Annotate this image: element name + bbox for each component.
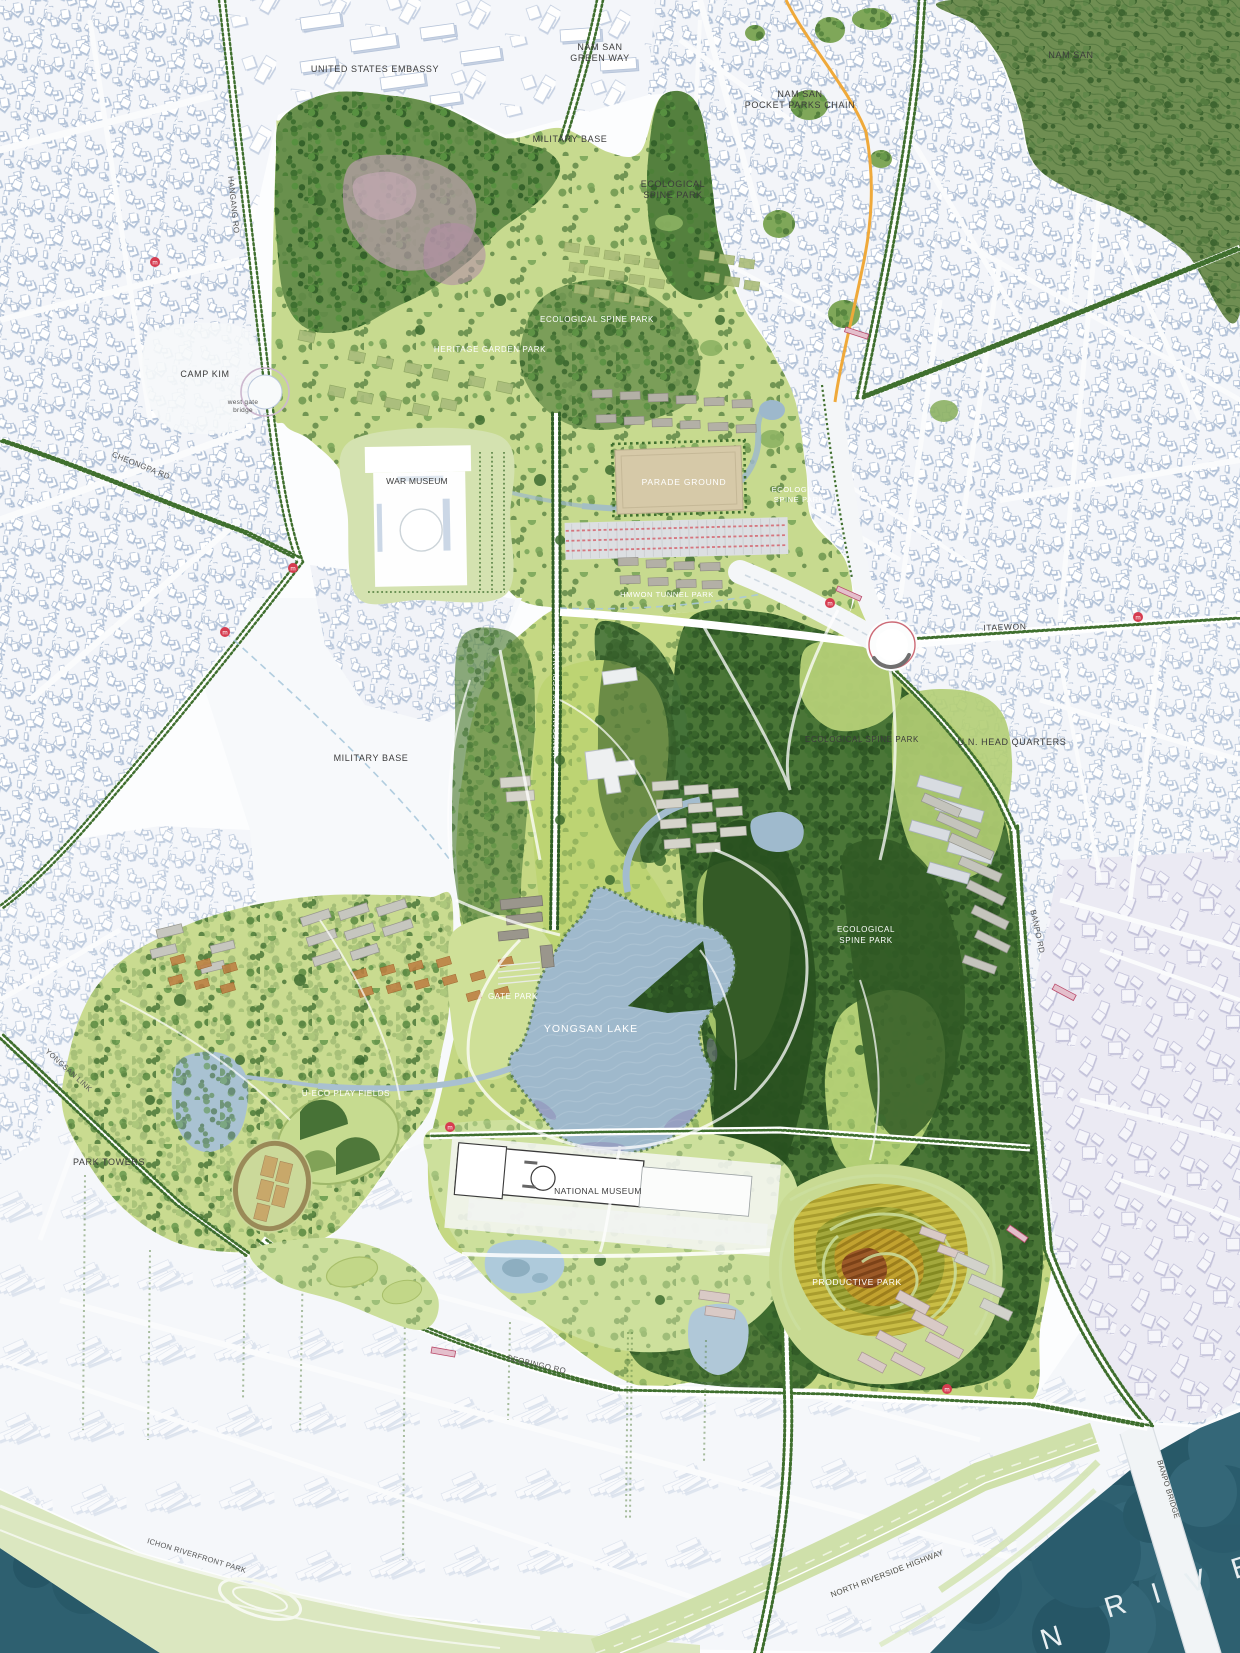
svg-text:U-ECO PLAY FIELDS: U-ECO PLAY FIELDS — [302, 1089, 390, 1098]
svg-text:WAR MUSEUM: WAR MUSEUM — [386, 476, 448, 486]
svg-text:ECOLOGICAL SPINE PARK: ECOLOGICAL SPINE PARK — [540, 315, 654, 324]
svg-text:GREEN WAY: GREEN WAY — [570, 53, 629, 63]
svg-text:UNITED STATES EMBASSY: UNITED STATES EMBASSY — [311, 64, 439, 74]
svg-text:ECOLOGICAL: ECOLOGICAL — [837, 925, 895, 934]
svg-text:west gate: west gate — [227, 399, 259, 406]
svg-text:SPINE PARK: SPINE PARK — [839, 936, 892, 945]
svg-text:PARADE GROUND: PARADE GROUND — [642, 477, 727, 487]
svg-text:NAM SAN: NAM SAN — [577, 42, 622, 52]
svg-text:ECOLOGICAL: ECOLOGICAL — [641, 179, 706, 189]
svg-text:MILITARY BASE: MILITARY BASE — [334, 753, 409, 763]
svg-text:m: m — [827, 600, 832, 607]
svg-text:HMWON TUNNEL PARK: HMWON TUNNEL PARK — [620, 590, 714, 599]
svg-text:m: m — [152, 259, 157, 266]
svg-text:m: m — [447, 1124, 452, 1131]
svg-text:SPINE PARK: SPINE PARK — [643, 190, 702, 200]
svg-text:POCKET PARKS CHAIN: POCKET PARKS CHAIN — [745, 100, 856, 110]
svg-text:NAM SAN: NAM SAN — [777, 89, 822, 99]
svg-text:ECOLOGICAL: ECOLOGICAL — [772, 485, 827, 494]
svg-text:U.N. HEAD QUARTERS: U.N. HEAD QUARTERS — [958, 737, 1067, 747]
svg-text:HERITAGE GARDEN PARK: HERITAGE GARDEN PARK — [434, 345, 546, 354]
svg-text:m: m — [1135, 614, 1140, 621]
svg-text:ITAEWON: ITAEWON — [983, 621, 1027, 633]
svg-text:m: m — [290, 565, 295, 572]
svg-text:YONGSAN PARK ESPLANADE: YONGSAN PARK ESPLANADE — [553, 644, 560, 757]
svg-text:SPINE PARK: SPINE PARK — [774, 495, 824, 504]
svg-text:bridge: bridge — [233, 407, 253, 414]
svg-text:PARK TOWERS: PARK TOWERS — [73, 1157, 145, 1167]
svg-text:CAMP KIM: CAMP KIM — [180, 369, 229, 379]
svg-text:YONGSAN LAKE: YONGSAN LAKE — [544, 1023, 638, 1035]
svg-text:GATE PARK: GATE PARK — [488, 992, 538, 1001]
svg-text:ECOLOGICAL SPINE PARK: ECOLOGICAL SPINE PARK — [805, 735, 919, 744]
svg-text:PRODUCTIVE PARK: PRODUCTIVE PARK — [812, 1277, 902, 1287]
svg-text:MILITARY BASE: MILITARY BASE — [533, 134, 608, 144]
svg-text:m: m — [944, 1386, 949, 1393]
svg-text:NATIONAL MUSEUM: NATIONAL MUSEUM — [554, 1186, 642, 1196]
svg-text:NAM SAN: NAM SAN — [1048, 50, 1093, 60]
svg-text:m: m — [222, 629, 227, 636]
